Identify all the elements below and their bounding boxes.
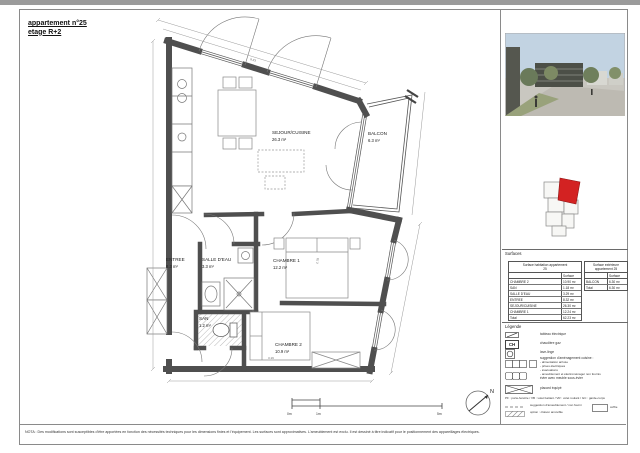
legende-rule <box>502 322 628 323</box>
dashed-line-icon <box>505 405 525 409</box>
highlighted-unit <box>558 178 580 204</box>
boiler-icon: CH <box>505 340 519 349</box>
kitchen-units-icon <box>505 360 537 382</box>
surfaces-rule <box>502 249 628 250</box>
legend-item-lave-linge: lave-linge <box>540 351 554 355</box>
nota-strip: NOTA : Des modifications sont susceptibl… <box>19 424 626 444</box>
scale-bar <box>292 398 442 409</box>
compass <box>466 391 490 415</box>
legend-item-tableau: tableau électrique <box>540 333 566 337</box>
room-area-balcon: 6.3 m² <box>368 138 380 143</box>
plan-sheet: appartement n°25 etage R+2 <box>0 0 640 453</box>
table-surface-exterieure: Surface extérieure appartement 25 Surfac… <box>584 261 628 291</box>
legend-abbreviations: PF : porte-fenêtre / VB : volet battant … <box>505 397 627 401</box>
room-area-chambre1: 12.2 m² <box>273 265 288 270</box>
legend-suggestion-ameublement: suggestion d'ameublement / non fourni <box>530 404 582 408</box>
washing-machine <box>238 248 253 263</box>
table-habitable-title: Surface habitation appartement 25 <box>509 262 581 273</box>
room-area-san: 1.2 m² <box>199 323 211 328</box>
room-name-balcon: BALCON <box>368 131 387 136</box>
legend-coffre-label: coffre <box>610 406 617 410</box>
key-plan <box>538 172 602 238</box>
wardrobe-icon <box>505 385 533 394</box>
building-rendering-photo <box>505 33 625 116</box>
north-label: N <box>490 389 494 395</box>
room-area-entree: 8.3 m² <box>166 264 178 269</box>
toilet <box>213 323 237 337</box>
room-area-sejour: 26.3 m² <box>272 137 287 142</box>
column-header-surface: Surface <box>562 273 581 278</box>
room-name-san: SAN <box>199 316 208 321</box>
surfaces-heading: Surfaces <box>505 251 522 256</box>
duct-shafts <box>147 268 167 334</box>
sofa <box>258 150 304 189</box>
hatch-swatch-icon <box>505 411 525 417</box>
room-name-salle-eau: SALLE D'EAU <box>202 257 231 262</box>
table-total-row: Total6.30 m² <box>585 285 627 290</box>
dimension-label-top: 8.33 <box>250 57 257 63</box>
dimension-label-chambre2: 3.19 <box>268 356 274 360</box>
coffre-icon <box>592 404 608 412</box>
legend-item-cuisine: suggestion d'aménagement cuisine : - ali… <box>540 357 626 377</box>
table-surface-habitable: Surface habitation appartement 25 Surfac… <box>508 261 582 321</box>
room-area-salle-eau: 3.3 m² <box>202 264 214 269</box>
dining-table <box>218 77 256 149</box>
placard-chambre2 <box>312 352 360 368</box>
legend-option-cloison: option : cloison amovible <box>530 411 563 415</box>
nota-text: NOTA : Des modifications sont susceptibl… <box>25 430 615 434</box>
washbasin <box>202 282 220 306</box>
scale-label-1: 1m <box>316 412 321 416</box>
legende-heading: Légende <box>505 324 521 329</box>
legend-item-chaudiere: chaudière gaz <box>540 342 561 346</box>
table-total-row: Total62.23 m² <box>509 315 581 320</box>
scale-label-5: 5m <box>437 412 442 416</box>
column-header-surface: Surface <box>608 273 627 278</box>
table-exterieure-title: Surface extérieure appartement 25 <box>585 262 627 273</box>
shower <box>224 278 254 310</box>
room-area-chambre2: 10.9 m² <box>275 349 290 354</box>
scale-label-0: 0m <box>287 412 292 416</box>
legend-item-evier: évier avec meuble sous-évier <box>540 377 583 381</box>
electrical-panel-icon <box>505 332 519 338</box>
room-name-entree: ENTREE <box>166 257 185 262</box>
legend-item-placard: placard équipé <box>540 387 562 391</box>
washing-machine-icon <box>505 349 515 359</box>
room-name-sejour: SEJOUR/CUISINE <box>272 130 311 135</box>
north-needle <box>469 395 488 411</box>
room-name-chambre1: CHAMBRE 1 <box>273 258 300 263</box>
kitchen-counter <box>172 68 192 213</box>
room-name-chambre2: CHAMBRE 2 <box>275 342 302 347</box>
